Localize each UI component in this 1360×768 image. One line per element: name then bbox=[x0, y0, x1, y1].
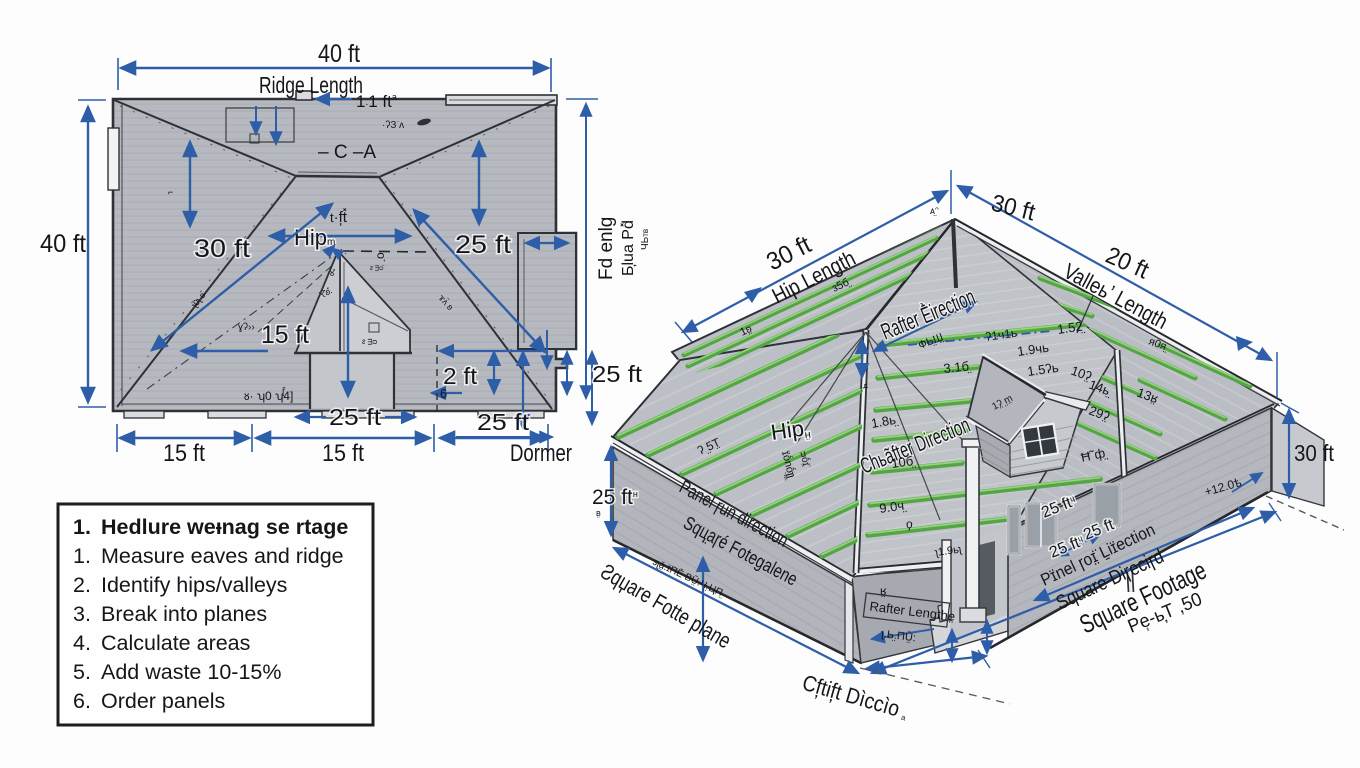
svg-text:Order panels: Order panels bbox=[101, 689, 225, 713]
svg-text:1.: 1. bbox=[73, 544, 91, 568]
svg-text:Calculate areas: Calculate areas bbox=[101, 631, 250, 655]
svg-text:– C –A: – C –A bbox=[318, 142, 376, 163]
svg-text:15 ft: 15 ft bbox=[322, 440, 364, 467]
svg-text:ᴑ̩: ᴑ̩ bbox=[377, 248, 385, 262]
svg-text:ʁ̤: ʁ̤ bbox=[880, 584, 887, 598]
svg-text:25 ft: 25 ft bbox=[592, 361, 643, 387]
svg-text:Dormer: Dormer bbox=[510, 440, 572, 467]
svg-text:2.: 2. bbox=[73, 573, 91, 597]
svg-text:ʙ̤: ʙ̤ bbox=[596, 508, 601, 518]
svg-text:Б̦lua Pd̽: Б̦lua Pd̽ bbox=[620, 220, 637, 276]
svg-text:5.: 5. bbox=[73, 660, 91, 684]
svg-text:ɣʔ››: ɣʔ›› bbox=[238, 322, 255, 333]
svg-text:ЧЬтв: ЧЬтв bbox=[640, 229, 651, 250]
svg-text:Add waste 10-15%: Add waste 10-15% bbox=[101, 660, 281, 684]
svg-text:Break into planes: Break into planes bbox=[101, 602, 267, 626]
svg-text:ᴤ ᴟᴑ: ᴤ ᴟᴑ bbox=[362, 337, 377, 346]
svg-text:40 ft: 40 ft bbox=[318, 40, 360, 68]
svg-text:·ʔЗ͘ ʌ: ·ʔЗ͘ ʌ bbox=[382, 120, 404, 131]
svg-text:3.: 3. bbox=[73, 602, 91, 626]
svg-text:30 ft: 30 ft bbox=[194, 235, 250, 263]
svg-text:1.: 1. bbox=[73, 515, 91, 539]
svg-text:30 ft: 30 ft bbox=[1294, 440, 1335, 466]
svg-text:25 ft: 25 ft bbox=[329, 404, 382, 430]
svg-text:6: 6 bbox=[440, 386, 447, 401]
svg-text:Hedlure weᵻnag se rtage: Hedlure weᵻnag se rtage bbox=[101, 515, 348, 539]
svg-text:25 ft: 25 ft bbox=[477, 409, 530, 435]
svg-text:Ridge Length: Ridge Length bbox=[259, 72, 363, 98]
svg-text:⌐: ⌐ bbox=[168, 187, 173, 197]
svg-text:ᴕ· ʮ0 ʮ4]: ᴕ· ʮ0 ʮ4] bbox=[244, 389, 293, 403]
svg-text:25 ftʜ: 25 ftʜ bbox=[592, 486, 638, 509]
svg-text:Measure eaves and ridge: Measure eaves and ridge bbox=[101, 544, 344, 568]
svg-text:6.: 6. bbox=[73, 689, 91, 713]
svg-text:15 ft: 15 ft bbox=[163, 440, 205, 467]
svg-text:·ɀʚ̽·: ·ɀʚ̽· bbox=[318, 287, 333, 297]
svg-text:40 ft: 40 ft bbox=[40, 230, 86, 258]
svg-text:15 ft: 15 ft bbox=[261, 321, 309, 349]
svg-text:ᴤ ᴟᴑ̄: ᴤ ᴟᴑ̄ bbox=[370, 265, 384, 272]
svg-text:Fd enlg: Fd enlg bbox=[596, 217, 617, 280]
svg-text:4.: 4. bbox=[73, 631, 91, 655]
svg-text:1.1 fta: 1.1 fta bbox=[356, 92, 397, 111]
svg-text:25 ft: 25 ft bbox=[455, 231, 511, 259]
svg-text:t·f̦t̽: t·f̦t̽ bbox=[330, 208, 348, 227]
svg-text:Identify hips/valleys: Identify hips/valleys bbox=[101, 573, 287, 597]
svg-text:ᴀ̤ᵔ: ᴀ̤ᵔ bbox=[930, 206, 939, 217]
svg-text:2 ft: 2 ft bbox=[443, 363, 478, 389]
svg-text:ϙ: ϙ bbox=[906, 517, 913, 531]
